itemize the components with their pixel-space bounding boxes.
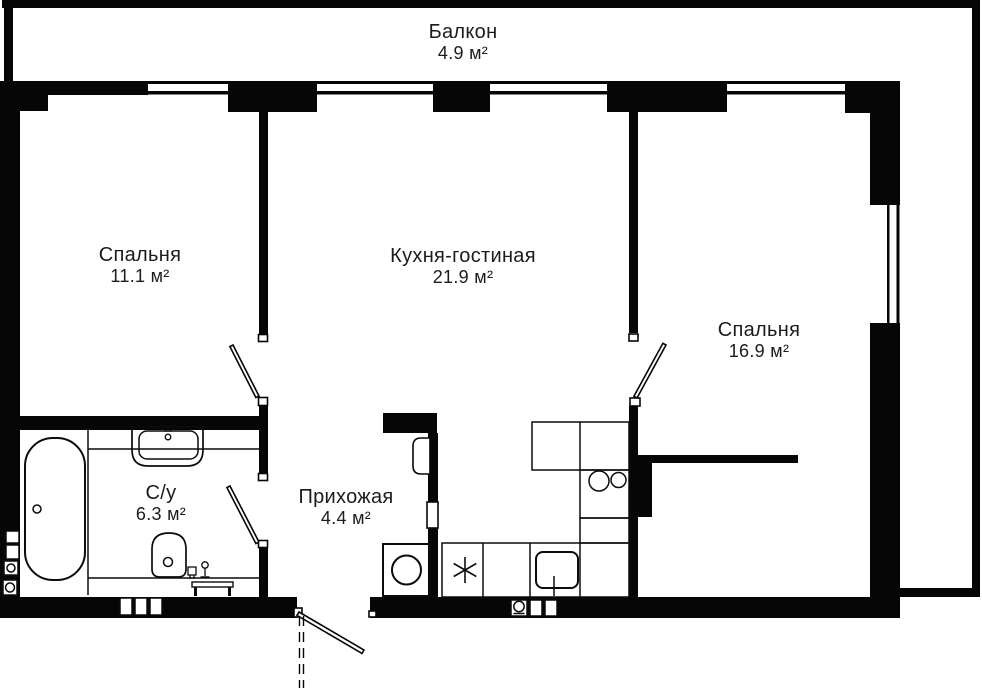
vent-box: [4, 561, 18, 575]
bottom-wall-right: [370, 597, 900, 618]
room-label-bathroom: С/у 6.3 м²: [136, 483, 186, 525]
room-area: 6.3 м²: [136, 504, 186, 525]
bench-leg: [228, 587, 231, 596]
doors: [227, 334, 666, 688]
bottom-wall-left: [0, 597, 297, 618]
window-4-outer-line: [727, 81, 845, 84]
wall-panel: [427, 502, 438, 528]
kitchen-sink: [536, 552, 578, 588]
toilet: [152, 533, 186, 577]
room-area: 21.9 м²: [390, 267, 536, 288]
door-jamb-marker: [259, 398, 268, 406]
door-jamb-marker: [259, 474, 268, 481]
hallway-stub-wall: [383, 413, 437, 433]
room-label-hallway: Прихожая 4.4 м²: [298, 487, 393, 529]
door-jamb-marker: [369, 611, 376, 617]
window-2-inner-line: [317, 91, 433, 95]
bathroom-top-wall: [18, 416, 268, 430]
vanity-basin: [139, 431, 198, 459]
vanity-faucet-icon: [165, 434, 171, 440]
kitchen-cabinet: [580, 518, 629, 543]
room-area: 16.9 м²: [718, 341, 800, 362]
stove-icon: [454, 557, 477, 583]
balcony-right-edge: [972, 0, 980, 597]
vent-box: [530, 600, 542, 616]
vent-box: [135, 598, 147, 615]
wall-pier: [433, 81, 490, 112]
right-wall-upper: [870, 111, 900, 205]
wall-band: [48, 81, 148, 95]
room-name: Кухня-гостиная: [390, 246, 536, 267]
wall-bedroom1-kitchen: [259, 112, 268, 337]
room-label-balcony: Балкон 4.9 м²: [429, 22, 498, 64]
towel-rail-icon: [188, 567, 196, 575]
room-area: 4.4 м²: [298, 508, 393, 529]
bathroom-right-wall: [259, 547, 268, 597]
room-area: 4.9 м²: [429, 43, 498, 64]
bathtub: [25, 438, 85, 580]
window-3-inner-line: [490, 91, 607, 95]
sink-bowl-icon: [589, 471, 609, 491]
entry-door-leaf: [297, 612, 364, 653]
door-leaf-bathroom: [227, 486, 259, 544]
right-window-line: [887, 205, 890, 323]
wall-column: [629, 457, 652, 517]
sink-bowl-icon: [611, 473, 626, 488]
bedroom2-partition: [638, 455, 798, 463]
right-window-line: [897, 205, 900, 323]
wall-pier: [607, 81, 727, 112]
wall-pier: [845, 81, 900, 113]
room-name: С/у: [136, 483, 186, 504]
top-wall-windows: [0, 81, 900, 113]
door-jamb-marker: [629, 334, 638, 341]
wall-kitchen-bedroom2: [629, 112, 638, 333]
balcony-top-edge: [2, 0, 980, 8]
floor-plan-drawing: [0, 0, 982, 689]
room-name: Прихожая: [298, 487, 393, 508]
room-label-bedroom2: Спальня 16.9 м²: [718, 320, 800, 362]
bathtub-drain: [33, 505, 41, 513]
door-jamb-marker: [630, 398, 640, 406]
vent-box: [545, 600, 557, 616]
vent-box: [120, 598, 132, 615]
room-area: 11.1 м²: [99, 266, 181, 287]
wall-bedroom1-kitchen: [259, 405, 268, 416]
vent-box: [150, 598, 162, 615]
hook-icon: [202, 562, 208, 568]
bench: [192, 582, 233, 587]
vent-box: [6, 545, 19, 559]
bathroom-right-wall: [259, 430, 268, 474]
floor-plan: Балкон 4.9 м² Спальня 11.1 м² Кухня-гост…: [0, 0, 982, 689]
vent-box: [6, 531, 19, 543]
room-label-bedroom1: Спальня 11.1 м²: [99, 245, 181, 287]
window-3-outer-line: [490, 81, 607, 84]
window-1-outer-line: [148, 81, 228, 84]
washing-machine: [383, 544, 430, 596]
window-1-inner-line: [148, 91, 228, 95]
room-name: Спальня: [99, 245, 181, 266]
door-leaf-bedroom1: [230, 345, 259, 398]
toilet-button: [164, 558, 173, 567]
room-name: Балкон: [429, 22, 498, 43]
bench-leg: [194, 587, 197, 596]
door-jamb-marker: [259, 335, 268, 342]
balcony-left-edge: [4, 0, 13, 81]
door-arc-kitchen: [413, 438, 430, 474]
room-name: Спальня: [718, 320, 800, 341]
wall-pier: [228, 81, 317, 112]
washing-machine-drum: [392, 556, 421, 585]
door-leaf-bedroom2: [634, 343, 666, 398]
window-4-inner-line: [727, 91, 845, 95]
kitchen-cabinet: [580, 470, 629, 518]
right-wall-lower: [870, 323, 900, 597]
balcony-bottom-edge: [900, 588, 980, 597]
window-2-outer-line: [317, 81, 433, 84]
room-label-kitchen-living: Кухня-гостиная 21.9 м²: [390, 246, 536, 288]
door-jamb-marker: [259, 541, 268, 548]
